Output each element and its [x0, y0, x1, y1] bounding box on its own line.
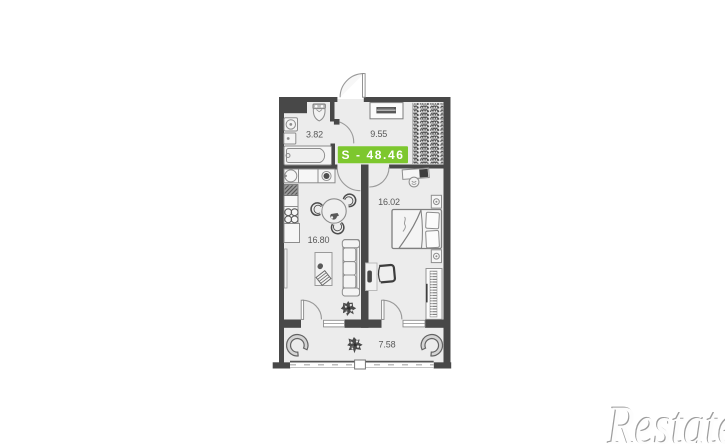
- svg-text:16.80: 16.80: [308, 235, 330, 245]
- svg-text:3.82: 3.82: [306, 130, 323, 140]
- svg-text:9.55: 9.55: [370, 129, 387, 139]
- svg-text:7.58: 7.58: [379, 340, 396, 350]
- svg-text:S - 48.46: S - 48.46: [341, 148, 404, 162]
- svg-text:16.02: 16.02: [378, 197, 400, 207]
